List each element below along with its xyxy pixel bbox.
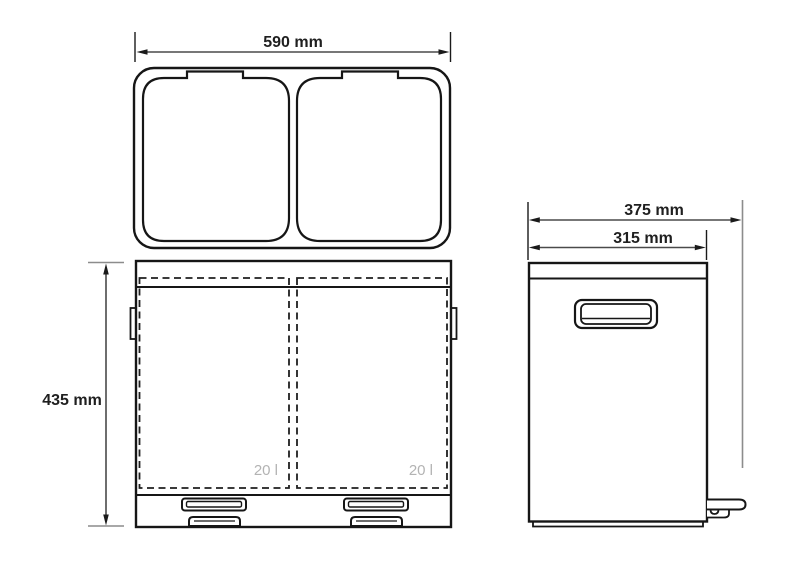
front-view: 20 l 20 l [131, 261, 457, 527]
dim-435-arrow-up [103, 264, 109, 275]
top-view [134, 68, 450, 248]
pedal-right-upper [344, 499, 408, 511]
pedal-left-upper [182, 499, 246, 511]
dim-315-label: 315 mm [613, 230, 673, 247]
dim-590-arrow-left [137, 49, 148, 55]
capacity-label-left: 20 l [254, 462, 278, 479]
dim-375-arrow-right [731, 217, 742, 223]
side-pedal-bracket [707, 510, 729, 518]
handle-inner [581, 304, 651, 324]
dim-315-arrow-right [695, 245, 706, 251]
side-view [529, 263, 746, 527]
side-pedal-bar [707, 500, 746, 510]
side-view-outline [529, 263, 707, 522]
dim-375-arrow-left [529, 217, 540, 223]
dim-590-arrow-right [439, 49, 450, 55]
capacity-label-right: 20 l [409, 462, 433, 479]
dimension-590: 590 mm [135, 32, 451, 62]
dim-435-arrow-down [103, 515, 109, 526]
hinge-tab-right [451, 308, 457, 339]
top-view-lid-outline [134, 68, 450, 248]
compartment-right-dashed [297, 278, 447, 488]
pedal-left [182, 499, 246, 527]
hinge-tab-left [131, 308, 137, 339]
technical-drawing-page: 590 mm 20 l 20 l 4 [0, 0, 800, 572]
top-view-left-opening [143, 72, 289, 242]
dim-375-label: 375 mm [624, 202, 684, 219]
dim-435-label: 435 mm [42, 392, 102, 409]
dimension-435: 435 mm [42, 263, 124, 527]
dimension-315: 315 mm [529, 230, 707, 260]
dim-590-label: 590 mm [263, 34, 323, 51]
pedal-right [344, 499, 408, 527]
top-view-right-opening [297, 72, 441, 242]
waste-bin-drawing: 590 mm 20 l 20 l 4 [0, 0, 800, 572]
compartment-left-dashed [140, 278, 290, 488]
side-handle [575, 300, 657, 328]
side-pedal [707, 500, 746, 518]
dim-315-arrow-left [529, 245, 540, 251]
